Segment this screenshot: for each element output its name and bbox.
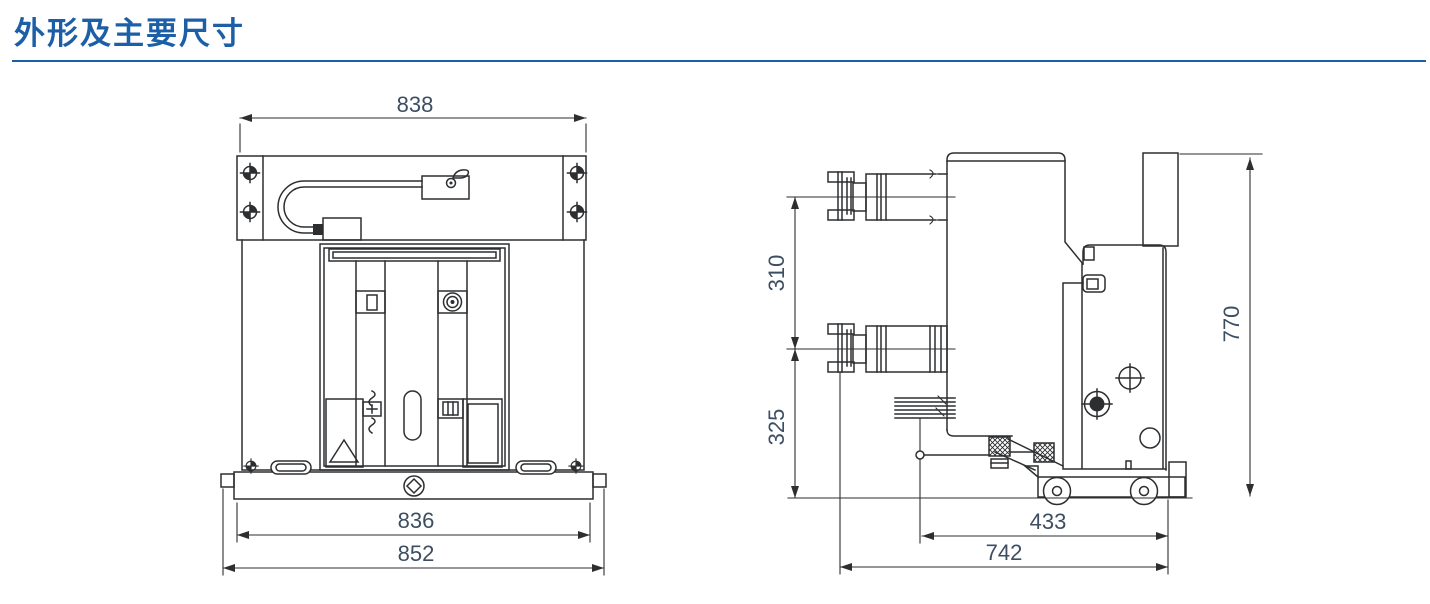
left-lower-panel <box>326 399 363 467</box>
side-view: 310 325 770 433 742 <box>764 153 1262 574</box>
front-view: 838 <box>221 92 606 575</box>
right-lower-panel <box>463 399 502 467</box>
rear-riser-plate <box>1143 153 1178 246</box>
open-target-icon <box>1116 364 1144 392</box>
dim-lower-terminal-to-base-value: 325 <box>764 409 789 446</box>
filled-target-icon <box>1082 389 1112 419</box>
dim-overall-height-value: 770 <box>1219 306 1244 343</box>
trolley-wheel-icon <box>1044 478 1071 505</box>
hook-icon <box>453 170 468 178</box>
dim-terminal-pitch-value: 310 <box>764 255 789 292</box>
dim-overall-width-base-value: 852 <box>398 541 435 566</box>
dim-overall-width-top-value: 838 <box>397 92 434 117</box>
datum-target-icon <box>244 459 258 473</box>
dim-terminal-pitch <box>791 197 799 349</box>
handle-slot-icon <box>516 461 556 474</box>
lifting-cable-loop <box>278 170 469 240</box>
dim-overall-width-top <box>240 114 586 152</box>
datasheet-section: 外形及主要尺寸 838 <box>0 0 1430 604</box>
top-frame <box>237 156 586 240</box>
dimension-drawing: 838 <box>0 0 1430 604</box>
flexible-connector <box>895 396 955 418</box>
latch-window-icon <box>438 399 463 418</box>
base-tab-right <box>593 474 606 487</box>
dim-lower-terminal-to-base <box>791 349 799 498</box>
lower-terminal-bushing <box>828 324 947 372</box>
hatched-bolt-icon <box>989 437 1010 456</box>
concentric-rings-icon <box>438 291 467 313</box>
dim-overall-depth-value: 742 <box>986 540 1023 565</box>
trolley-wheel-icon <box>1131 478 1158 505</box>
keyhole-slot-icon <box>404 391 421 440</box>
interlock-slot-icon <box>356 291 385 313</box>
dim-frame-width-value: 836 <box>398 508 435 533</box>
datum-target-icon <box>569 459 583 473</box>
base-tab-left <box>221 474 234 487</box>
breaker-body <box>242 240 584 470</box>
dim-axis-to-rear-value: 433 <box>1030 509 1067 534</box>
round-hole-icon <box>1140 428 1160 448</box>
handle-slot-icon <box>271 461 311 474</box>
mechanism-housing <box>1063 153 1178 470</box>
warning-triangle-icon <box>330 440 358 462</box>
spring-charge-icon <box>363 391 381 433</box>
base-rail <box>221 459 606 499</box>
datum-target-icons <box>241 164 587 222</box>
